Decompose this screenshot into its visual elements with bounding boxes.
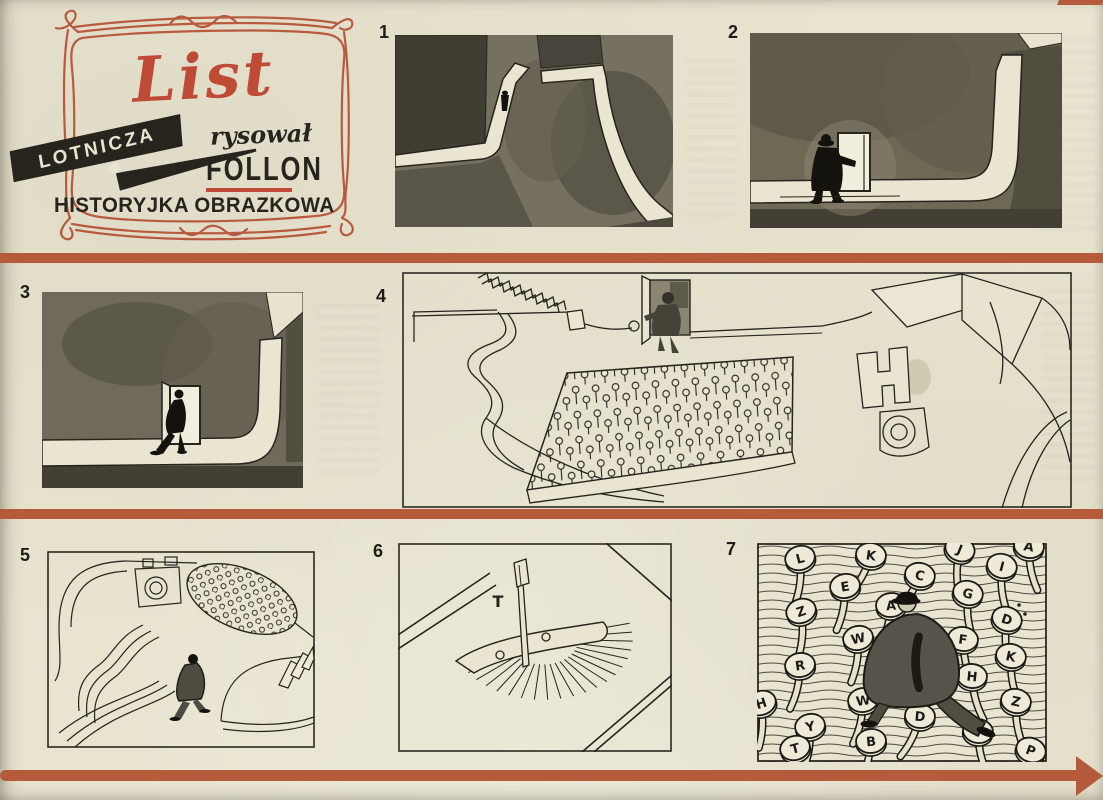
- key-letter: H: [966, 669, 978, 685]
- panel-1-walls-aerial: [395, 35, 673, 227]
- print-showthrough: [318, 305, 380, 480]
- panel-number-3: 3: [20, 282, 30, 303]
- divider-bar-middle: [0, 509, 1103, 519]
- key-letter: D: [914, 710, 926, 726]
- second-machine: [221, 623, 314, 731]
- panel-4-giant-typewriter: [402, 272, 1072, 508]
- segment-plate: [456, 622, 607, 673]
- panel-number-4: 4: [376, 286, 386, 307]
- walking-man-figure: [170, 654, 211, 721]
- key-letter: R: [794, 658, 806, 674]
- panel-number-5: 5: [20, 545, 30, 566]
- panel-5-typewriter-landscape: [47, 551, 315, 748]
- panel-7-man-on-keys: LKJAECIZAGDWFRKHHWZYDBVTP: [757, 543, 1047, 762]
- keyboard-field: [527, 357, 795, 503]
- keyboard-field: [177, 551, 307, 649]
- credit-label: rysował: [210, 118, 313, 151]
- credit-underline: [206, 188, 292, 192]
- coil-spring: [478, 273, 632, 330]
- credit-artist-name: FOLLON: [206, 150, 323, 189]
- red-arrowhead: [1076, 756, 1103, 796]
- key-letter: B: [866, 735, 877, 751]
- key-letter: W: [850, 631, 867, 649]
- comic-page: List LOTNICZA rysował FOLLON HISTORYJKA …: [0, 0, 1103, 800]
- panel-3-man-exits-door: [42, 292, 303, 488]
- panel-2-man-at-door: [750, 33, 1062, 228]
- comic-subtitle: HISTORYJKA OBRAZKOWA: [54, 194, 335, 218]
- panel-number-1: 1: [379, 22, 389, 43]
- divider-bar-top: [0, 253, 1103, 263]
- red-corner-mark: [1057, 0, 1103, 5]
- mechanism-and-paper: [822, 274, 1070, 508]
- panel-number-6: 6: [373, 541, 383, 562]
- type-letter-t: T: [493, 592, 504, 611]
- panel-number-7: 7: [726, 539, 736, 560]
- title-block: List LOTNICZA rysował FOLLON HISTORYJKA …: [20, 4, 376, 250]
- comic-title: List: [130, 36, 276, 116]
- panel-6-typebar-closeup: T: [398, 543, 672, 752]
- divider-bar-bottom: [0, 770, 1082, 781]
- print-showthrough: [686, 60, 738, 220]
- panel-number-2: 2: [728, 22, 738, 43]
